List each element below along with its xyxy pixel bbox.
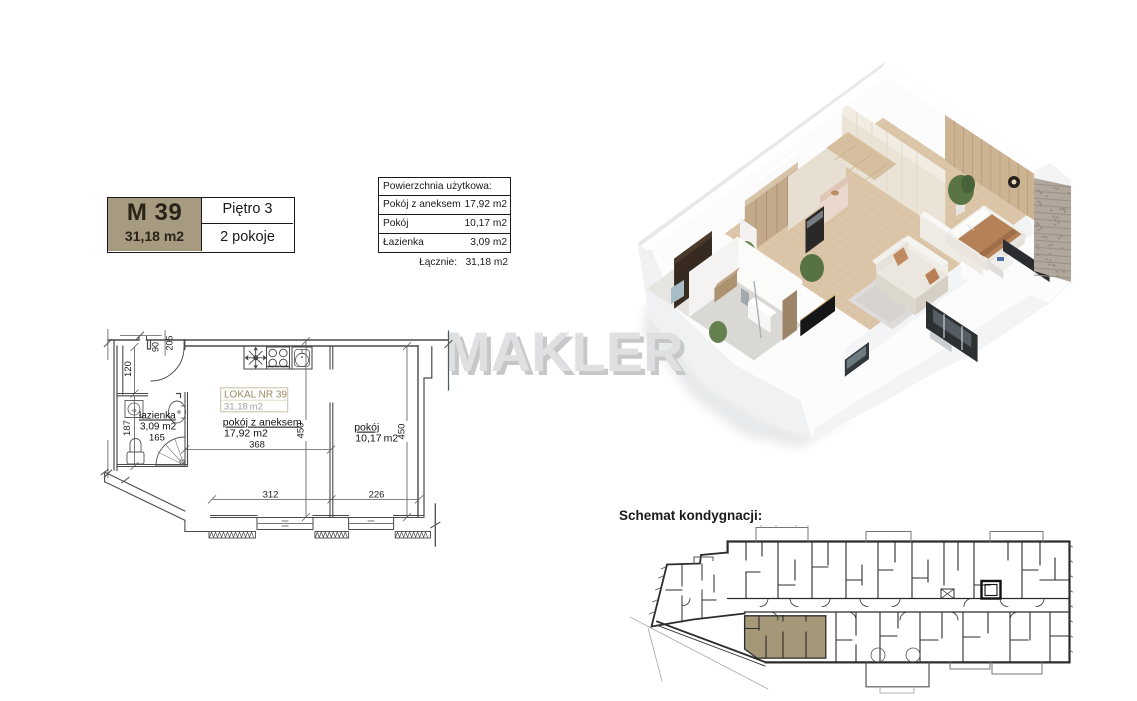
svg-text:łazienka: łazienka — [139, 411, 176, 422]
svg-text:LOKAL NR 39: LOKAL NR 39 — [224, 390, 287, 401]
svg-text:10,17m2: 10,17m2 — [355, 433, 398, 445]
svg-text:368: 368 — [249, 440, 265, 451]
svg-text:205: 205 — [164, 335, 174, 350]
svg-text:450: 450 — [296, 423, 307, 439]
svg-text:165: 165 — [149, 433, 165, 444]
svg-text:187: 187 — [122, 420, 133, 436]
svg-text:90: 90 — [151, 342, 161, 352]
svg-text:120: 120 — [123, 361, 134, 377]
svg-text:17,92 m2: 17,92 m2 — [224, 428, 268, 440]
svg-text:450: 450 — [397, 424, 408, 440]
svg-text:226: 226 — [369, 489, 385, 500]
svg-text:31,18m2: 31,18m2 — [224, 402, 263, 413]
svg-text:3,09 m2: 3,09 m2 — [140, 422, 177, 433]
svg-text:312: 312 — [263, 489, 279, 500]
